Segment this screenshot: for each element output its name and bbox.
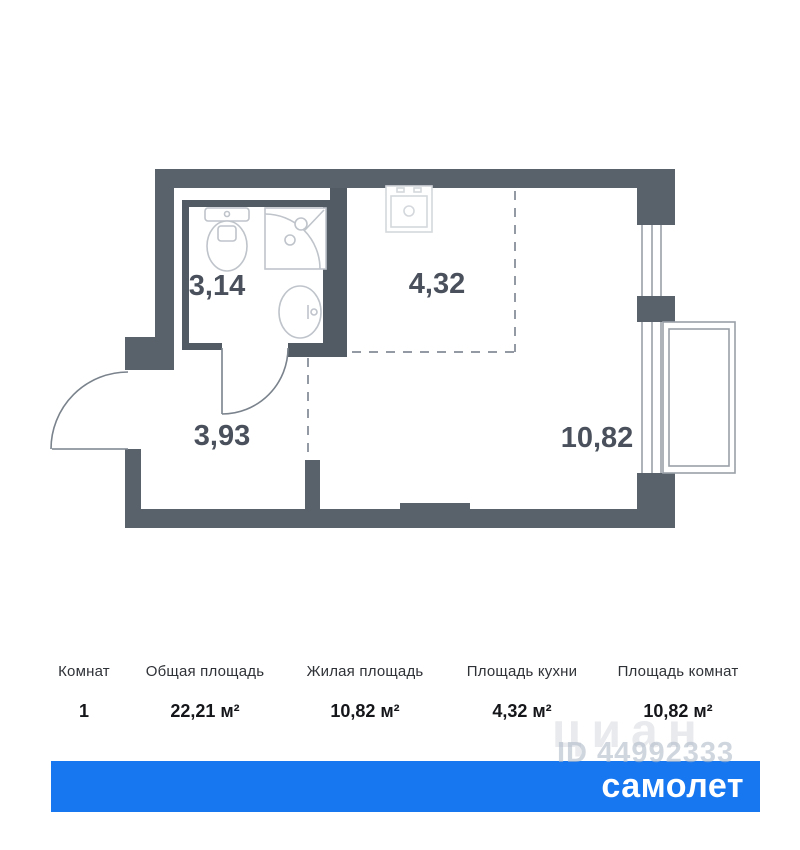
summary-col-living-area: Жилая площадь 10,82 м² bbox=[290, 663, 440, 722]
room-label-kitchen: 4,32 bbox=[409, 268, 465, 300]
window-large bbox=[642, 322, 661, 473]
bathroom-door bbox=[222, 348, 288, 414]
summary-col-total-area: Общая площадь 22,21 м² bbox=[130, 663, 280, 722]
column-value: 1 bbox=[24, 701, 144, 722]
room-label-bathroom: 3,14 bbox=[189, 270, 245, 302]
washbasin-icon bbox=[279, 286, 321, 338]
column-header: Жилая площадь bbox=[290, 663, 440, 680]
kitchen-sink-icon bbox=[386, 186, 432, 232]
column-header: Общая площадь bbox=[130, 663, 280, 680]
room-label-living-room: 10,82 bbox=[561, 422, 634, 454]
column-header: Комнат bbox=[24, 663, 144, 680]
floor-plan: 3,14 4,32 3,93 10,82 bbox=[0, 0, 800, 640]
room-label-hallway: 3,93 bbox=[194, 420, 250, 452]
entrance-door bbox=[51, 372, 128, 449]
toilet-icon bbox=[205, 208, 249, 271]
balcony-frame bbox=[663, 322, 735, 473]
column-header: Площадь кухни bbox=[447, 663, 597, 680]
summary-col-rooms: Комнат 1 bbox=[24, 663, 144, 722]
column-header: Площадь комнат bbox=[603, 663, 753, 680]
floorplan-card: 3,14 4,32 3,93 10,82 Комнат 1 Общая площ… bbox=[0, 0, 800, 850]
watermark-listing-id: ID 44992333 bbox=[557, 737, 767, 770]
column-value: 22,21 м² bbox=[130, 701, 280, 722]
shower-icon bbox=[265, 208, 326, 269]
window-small bbox=[642, 225, 661, 296]
column-value: 10,82 м² bbox=[290, 701, 440, 722]
